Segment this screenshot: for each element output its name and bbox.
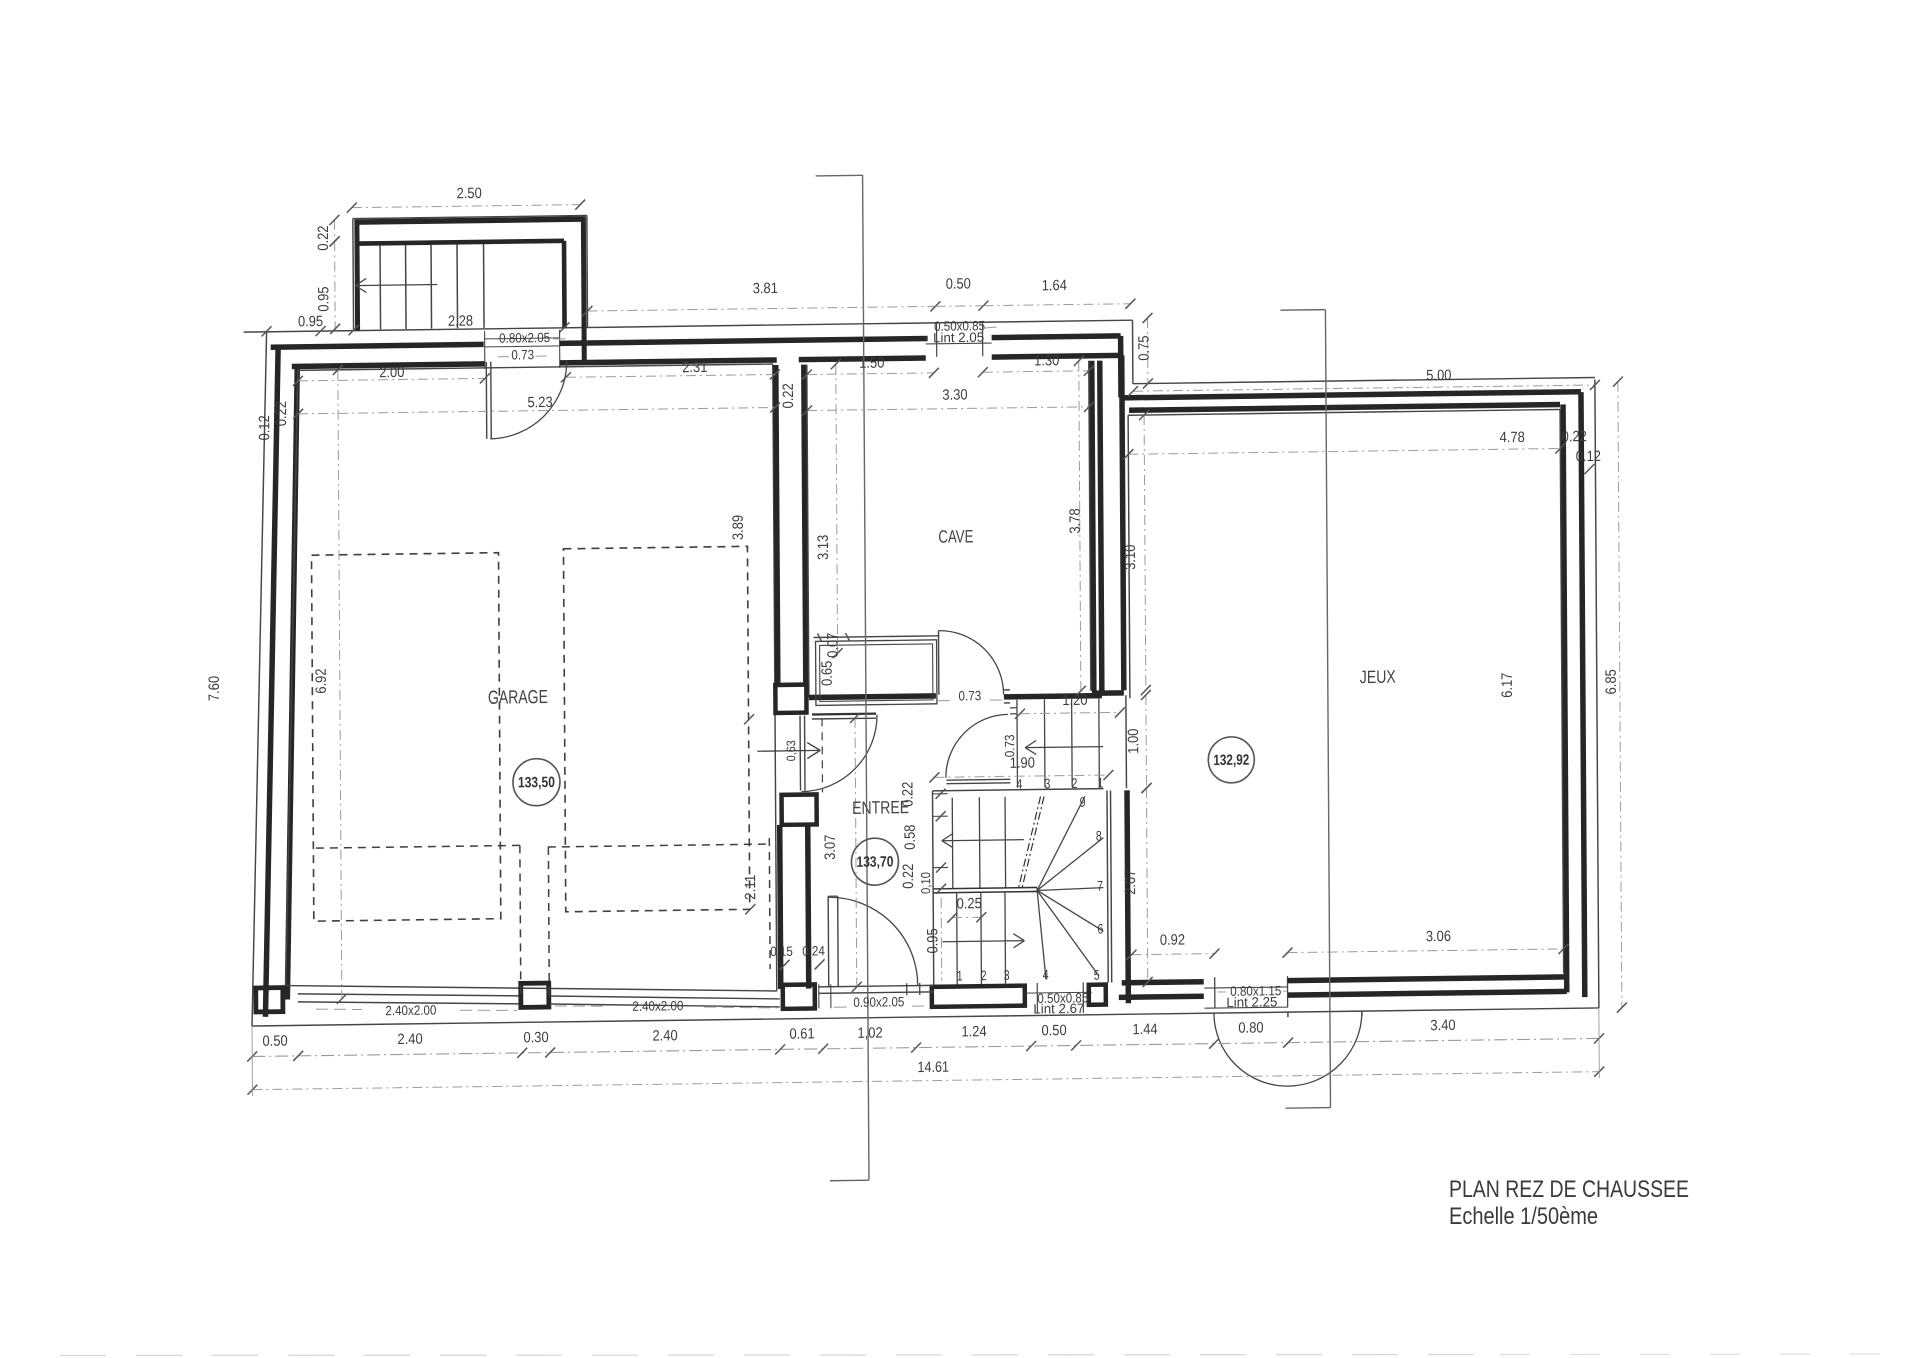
svg-text:1.44: 1.44 <box>1132 1021 1157 1038</box>
svg-text:0.90x2.05: 0.90x2.05 <box>853 994 904 1010</box>
svg-text:2.11: 2.11 <box>742 875 759 900</box>
svg-text:5.23: 5.23 <box>527 394 552 411</box>
svg-text:7: 7 <box>1097 878 1103 894</box>
svg-text:133,70: 133,70 <box>856 853 893 870</box>
svg-text:4: 4 <box>1043 966 1049 982</box>
svg-text:0.50: 0.50 <box>262 1033 287 1050</box>
svg-text:2.28: 2.28 <box>448 313 473 330</box>
svg-text:3.40: 3.40 <box>1430 1017 1455 1034</box>
svg-text:1.00: 1.00 <box>1125 728 1142 753</box>
svg-text:0.30: 0.30 <box>523 1029 548 1046</box>
svg-text:2.40x2.00: 2.40x2.00 <box>632 998 683 1014</box>
svg-text:1.50: 1.50 <box>859 355 884 372</box>
svg-text:7.60: 7.60 <box>206 676 223 701</box>
svg-text:133,50: 133,50 <box>518 774 555 791</box>
svg-text:0.24: 0.24 <box>802 943 825 958</box>
svg-text:CAVE: CAVE <box>938 526 973 546</box>
svg-text:5: 5 <box>1094 967 1100 983</box>
svg-text:0.73: 0.73 <box>511 347 534 362</box>
svg-text:0.22: 0.22 <box>273 401 290 426</box>
svg-text:0,63: 0,63 <box>784 740 798 761</box>
svg-text:2.40x2.00: 2.40x2.00 <box>385 1003 436 1019</box>
svg-text:1.30: 1.30 <box>1034 352 1059 369</box>
svg-text:3.81: 3.81 <box>753 280 778 297</box>
svg-text:4: 4 <box>1016 776 1022 792</box>
svg-text:4.78: 4.78 <box>1500 429 1525 446</box>
svg-text:GARAGE: GARAGE <box>488 687 548 709</box>
svg-text:0.80x2.05: 0.80x2.05 <box>499 330 550 346</box>
svg-text:1: 1 <box>957 967 963 983</box>
svg-text:1: 1 <box>1097 775 1103 791</box>
svg-text:2.31: 2.31 <box>682 359 707 376</box>
svg-text:0.92: 0.92 <box>1160 931 1185 948</box>
svg-text:0.73: 0.73 <box>958 688 981 703</box>
svg-text:6: 6 <box>1097 921 1103 937</box>
svg-text:0.75: 0.75 <box>1136 335 1153 360</box>
svg-text:2.07: 2.07 <box>1122 870 1139 895</box>
svg-text:2.40: 2.40 <box>397 1031 422 1048</box>
svg-text:1.64: 1.64 <box>1042 277 1067 294</box>
svg-text:0.22: 0.22 <box>780 383 797 408</box>
svg-text:Lint 2.67: Lint 2.67 <box>1033 1001 1084 1017</box>
svg-text:0,10: 0,10 <box>918 872 933 894</box>
svg-text:Echelle 1/50ème: Echelle 1/50ème <box>1449 1203 1598 1230</box>
svg-text:0.15: 0.15 <box>770 944 793 959</box>
svg-text:Lint 2.25: Lint 2.25 <box>1226 994 1277 1010</box>
svg-text:0.50: 0.50 <box>1041 1022 1066 1039</box>
svg-text:3.30: 3.30 <box>942 386 967 403</box>
svg-text:0.22: 0.22 <box>315 225 332 250</box>
svg-text:3.06: 3.06 <box>1426 928 1451 945</box>
svg-text:0.61: 0.61 <box>789 1025 814 1042</box>
svg-text:6.17: 6.17 <box>1499 672 1516 697</box>
svg-text:9: 9 <box>1080 794 1086 810</box>
svg-text:8: 8 <box>1096 828 1102 844</box>
svg-text:2.40: 2.40 <box>652 1027 677 1044</box>
svg-text:Lint 2.05: Lint 2.05 <box>933 330 984 346</box>
svg-text:0.25: 0.25 <box>957 895 982 912</box>
svg-text:3.07: 3.07 <box>822 835 839 860</box>
svg-text:0.12: 0.12 <box>256 415 273 440</box>
svg-text:2.50: 2.50 <box>457 185 482 202</box>
svg-text:1.24: 1.24 <box>961 1023 986 1040</box>
svg-text:3.89: 3.89 <box>730 515 747 540</box>
svg-text:0.22: 0.22 <box>1562 428 1587 445</box>
svg-text:0.22: 0.22 <box>900 863 917 888</box>
svg-text:0.95: 0.95 <box>298 313 323 330</box>
svg-text:2: 2 <box>981 967 987 983</box>
svg-text:3: 3 <box>1004 967 1010 983</box>
svg-text:PLAN REZ DE CHAUSSEE: PLAN REZ DE CHAUSSEE <box>1449 1176 1689 1203</box>
svg-text:0.50: 0.50 <box>946 275 971 292</box>
svg-text:0.58: 0.58 <box>902 824 919 849</box>
svg-text:0.95: 0.95 <box>315 286 332 311</box>
svg-text:3.10: 3.10 <box>1122 545 1139 570</box>
svg-text:JEUX: JEUX <box>1360 667 1396 687</box>
svg-text:0.65: 0.65 <box>819 661 836 686</box>
svg-text:2.00: 2.00 <box>379 364 404 381</box>
svg-text:1.90: 1.90 <box>1010 755 1035 772</box>
svg-text:0.95: 0.95 <box>924 928 941 953</box>
svg-text:0.80: 0.80 <box>1238 1019 1263 1036</box>
svg-text:0.12: 0.12 <box>1576 448 1601 465</box>
svg-text:6.85: 6.85 <box>1603 669 1620 694</box>
svg-text:3: 3 <box>1044 775 1050 791</box>
svg-text:3.78: 3.78 <box>1067 508 1084 533</box>
svg-text:3.13: 3.13 <box>815 535 832 560</box>
svg-text:6.92: 6.92 <box>313 668 330 693</box>
svg-text:2: 2 <box>1071 775 1077 791</box>
svg-text:0.07: 0.07 <box>824 633 841 658</box>
svg-text:1,02: 1,02 <box>857 1025 882 1042</box>
svg-text:14.61: 14.61 <box>917 1059 949 1076</box>
svg-text:ENTREE: ENTREE <box>852 797 909 818</box>
svg-text:132,92: 132,92 <box>1213 752 1249 769</box>
svg-text:5.00: 5.00 <box>1426 367 1451 384</box>
svg-text:1.20: 1.20 <box>1062 692 1087 709</box>
